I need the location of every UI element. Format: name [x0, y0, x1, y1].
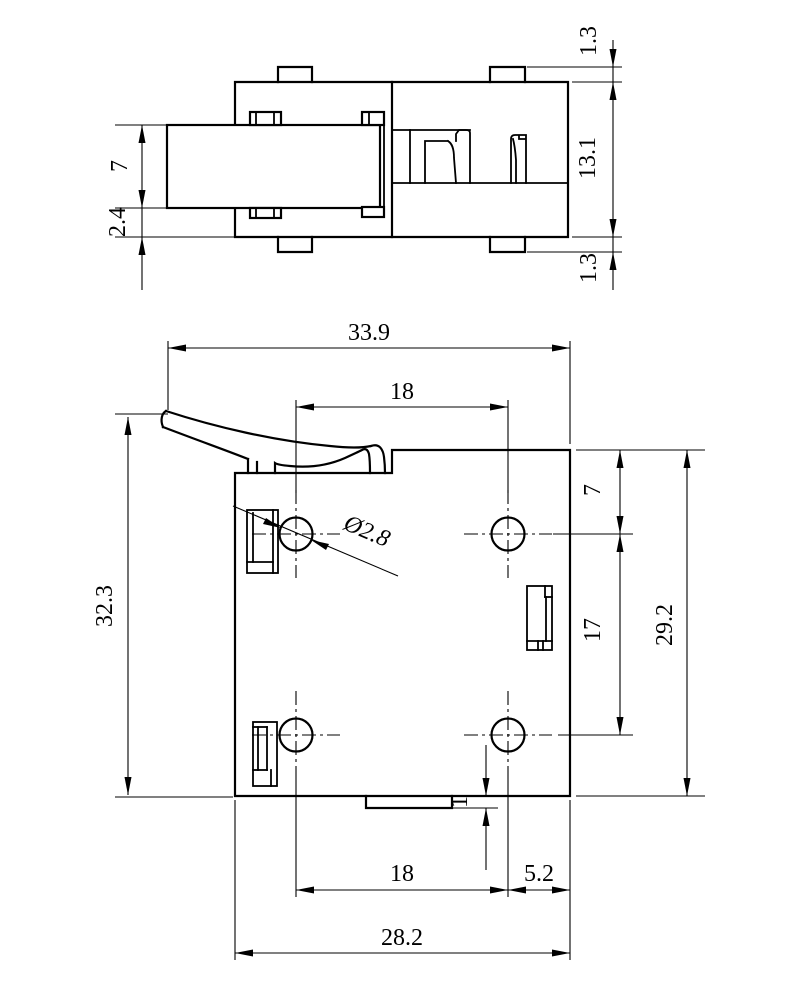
- contact-terminal-left: [425, 130, 470, 183]
- dim-hole-pitch-top: 18: [390, 379, 414, 405]
- dim-overall-height: 32.3: [92, 585, 118, 627]
- top-view-plate: [167, 125, 380, 208]
- dim-hole-row-pitch: 17: [580, 618, 606, 642]
- top-view-tab-bottom-left: [278, 237, 312, 252]
- top-view-tab-top-right: [490, 67, 525, 82]
- dim-body-height: 13.1: [575, 137, 601, 179]
- top-view-plate-wrap-tab-top-left: [250, 112, 281, 125]
- latch-catch: [275, 449, 370, 473]
- drawing-page: 7 2.4 1.3 13.1 1.3: [0, 0, 800, 1000]
- top-view-contacts: [392, 130, 568, 183]
- dim-plate-offset: 2.4: [105, 207, 131, 237]
- dim-bottom-width: 28.2: [381, 925, 423, 951]
- top-view-tab-top-left: [278, 67, 312, 82]
- dim-overall-width: 33.9: [348, 320, 390, 346]
- dim-bottom-tab-depth: 1: [447, 796, 473, 808]
- dim-tab-height-bottom: 1.3: [576, 253, 602, 283]
- cad-drawing-canvas: 7 2.4 1.3 13.1 1.3: [0, 0, 800, 1000]
- latch-lever: [162, 411, 385, 473]
- top-view-plate-wrap-tab-top-right: [362, 112, 384, 125]
- dim-right-height: 29.2: [652, 604, 678, 646]
- front-view-body-outline: [235, 450, 570, 796]
- dim-tab-height-top: 1.3: [576, 26, 602, 56]
- contact-terminal-right: [511, 135, 526, 183]
- dim-hole-pitch-bottom: 18: [390, 861, 414, 887]
- front-view: [162, 411, 570, 808]
- dim-hole-top-offset: 7: [580, 484, 606, 496]
- top-view: [167, 67, 568, 252]
- top-view-plate-wrap-tab-bottom-left: [250, 208, 281, 218]
- front-view-bottom-tab: [366, 796, 452, 808]
- dim-hole-right-offset: 5.2: [524, 861, 554, 887]
- top-view-plate-wrap-tab-bottom-right: [362, 207, 384, 217]
- top-view-tab-bottom-right: [490, 237, 525, 252]
- dim-plate-height: 7: [107, 160, 133, 172]
